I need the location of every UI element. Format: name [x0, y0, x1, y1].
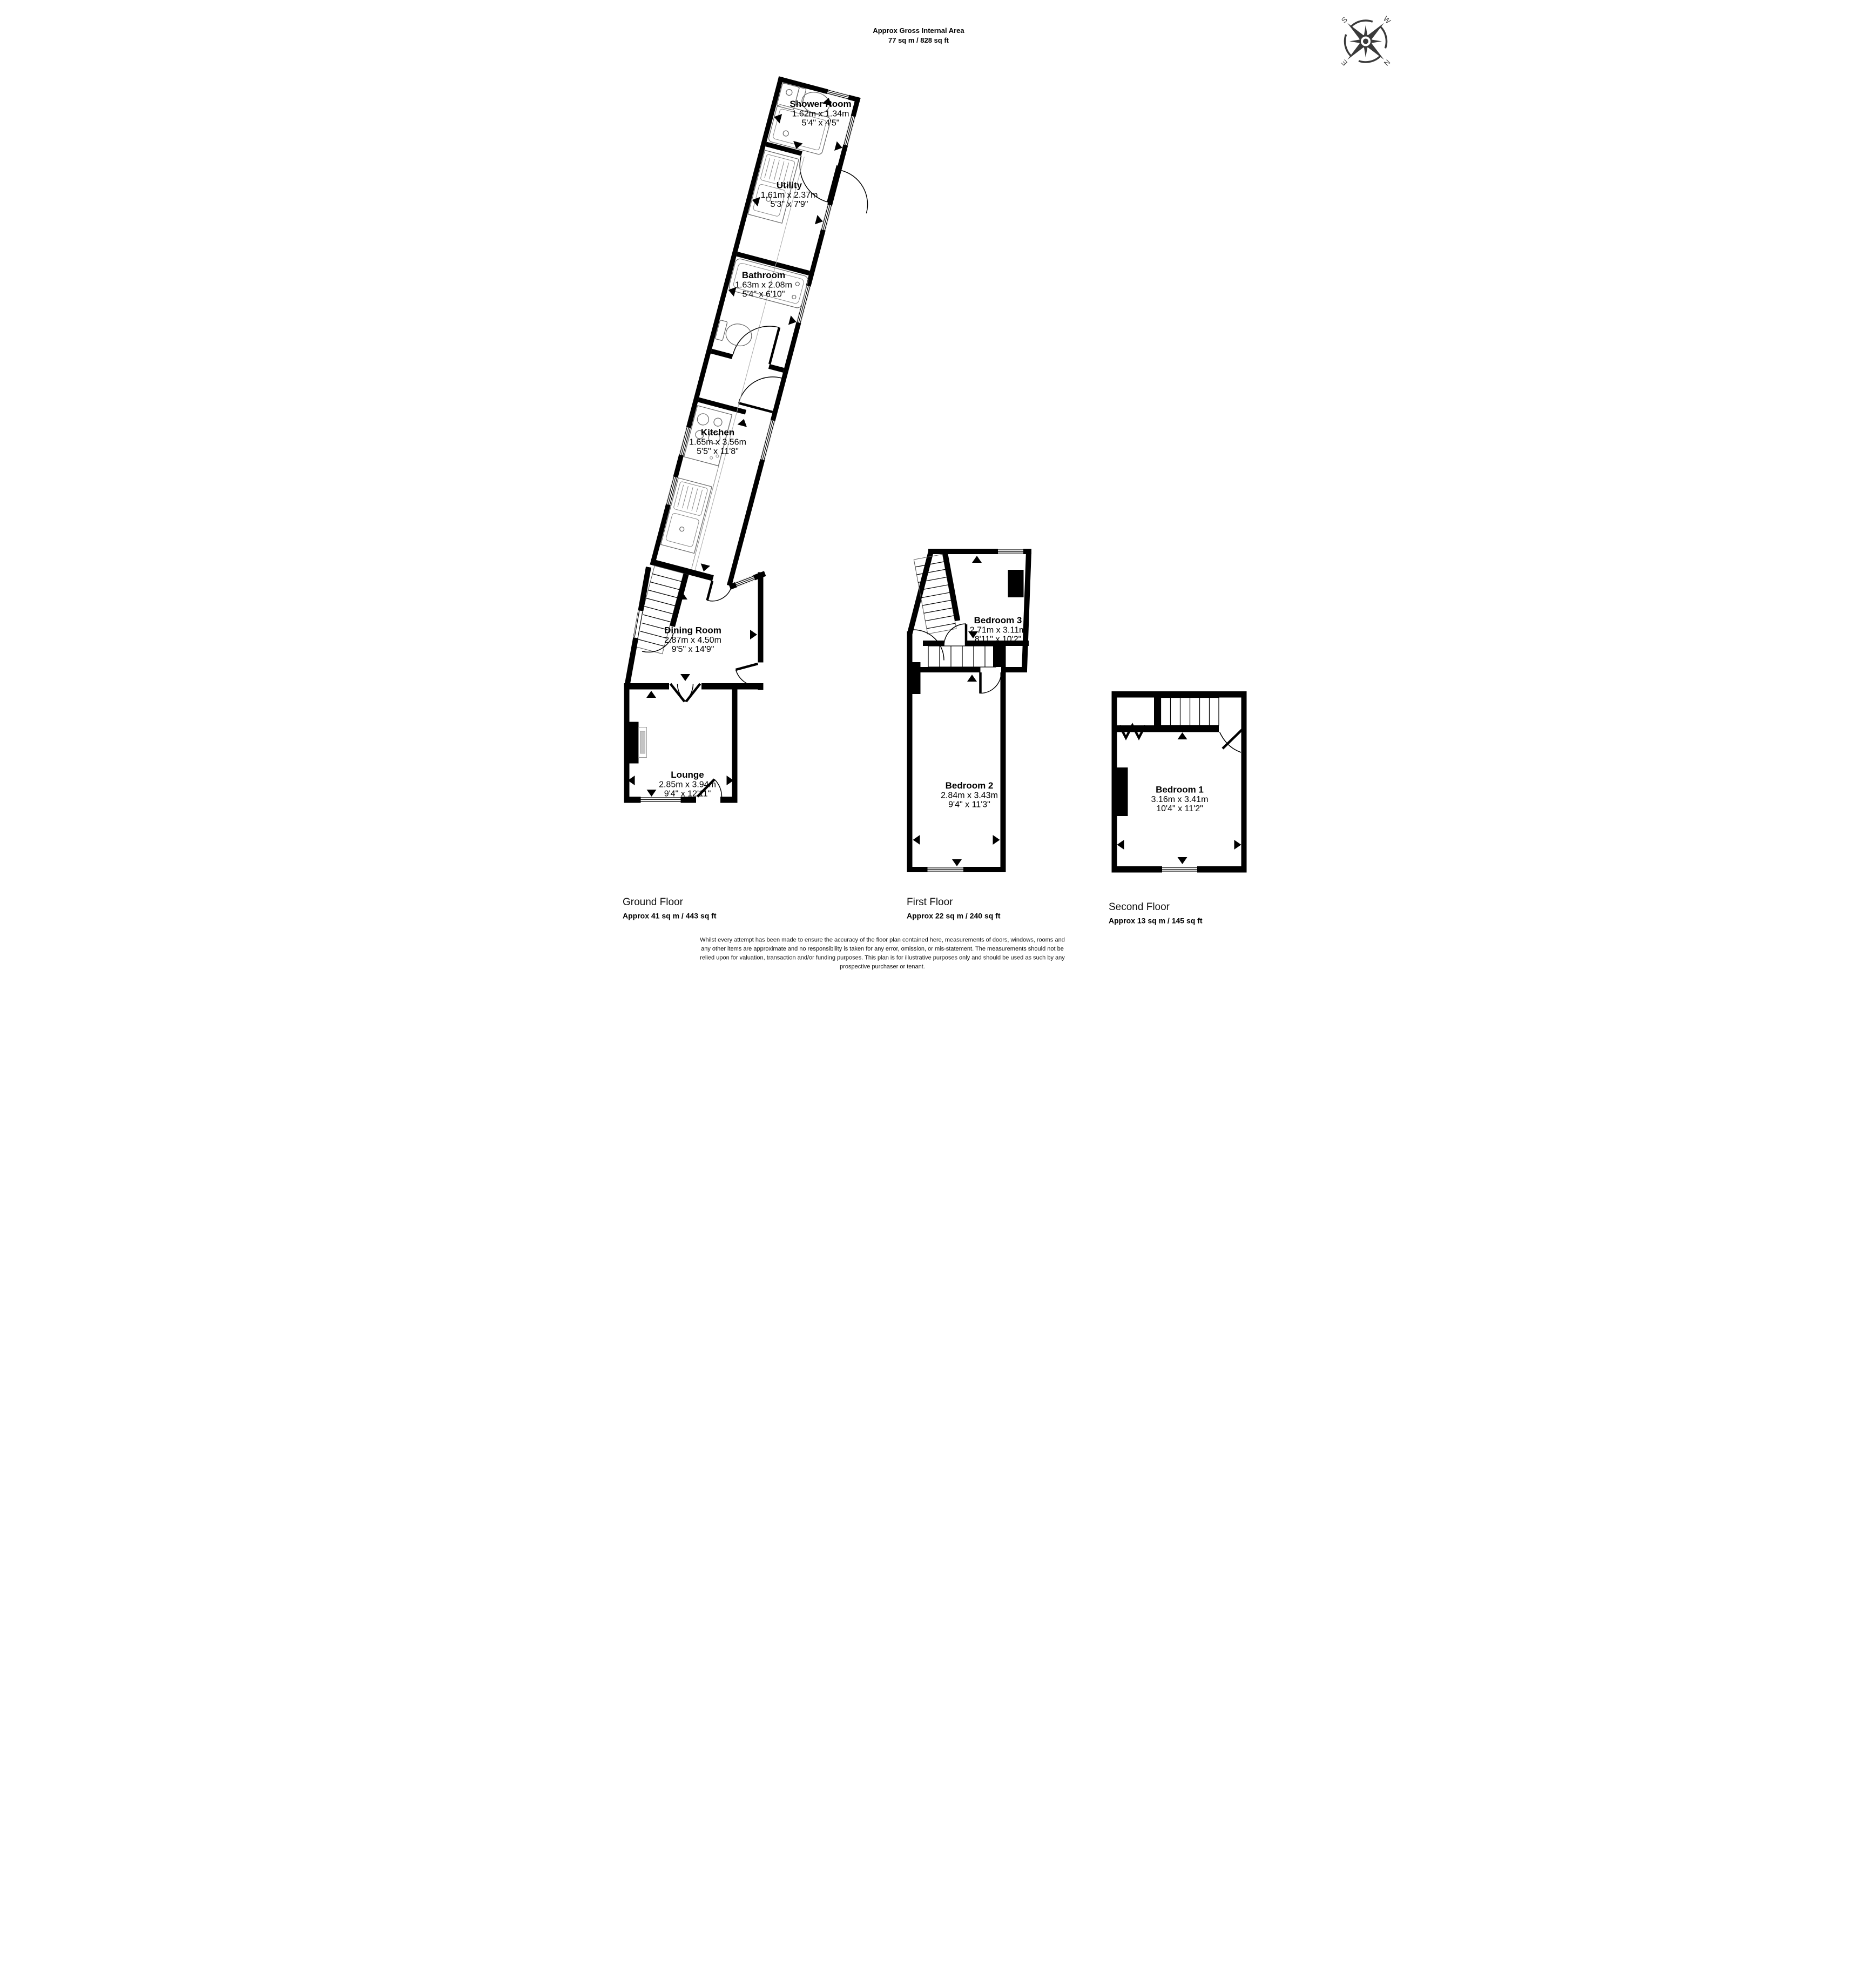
room-label-bedroom2: Bedroom 2 2.84m x 3.43m 9'4" x 11'3"	[941, 780, 998, 810]
wall	[768, 364, 784, 373]
chimney-breast	[1117, 767, 1128, 816]
room-dim-metric: 1.65m x 3.56m	[689, 438, 746, 447]
window	[666, 476, 678, 505]
room-dim-metric: 1.63m x 2.08m	[735, 281, 792, 290]
room-dim-imperial: 5'4" x 4'5"	[801, 119, 839, 128]
arrow-right-icon	[993, 835, 1000, 845]
wall	[1154, 725, 1219, 732]
arrow-down-icon	[646, 790, 656, 797]
room-name: Bedroom 3	[974, 615, 1022, 625]
wall	[711, 349, 733, 359]
wall	[732, 683, 737, 803]
header-area: 77 sq m / 828 sq ft	[888, 36, 949, 44]
room-name: Lounge	[671, 770, 704, 780]
door	[733, 318, 779, 364]
arrow-up-icon	[972, 556, 982, 563]
window	[827, 89, 849, 99]
wall	[1000, 667, 1006, 872]
disclaimer-line-1: Whilst every attempt has been made to en…	[700, 937, 1065, 944]
second-floor-title: Second Floor	[1109, 901, 1170, 913]
room-label-lounge: Lounge 2.85m x 3.94m 9'4" x 12'11"	[659, 770, 716, 799]
room-dim-imperial: 9'4" x 11'3"	[948, 800, 990, 810]
door-opening	[980, 667, 1001, 672]
room-name: Bedroom 2	[945, 780, 993, 791]
room-label-utility: Utility 1.61m x 2.37m 5'3" x 7'9"	[760, 180, 818, 210]
room-dim-metric: 2.87m x 4.50m	[664, 636, 721, 645]
header-title: Approx Gross Internal Area	[873, 26, 964, 35]
door	[1219, 729, 1243, 752]
arrow-right-icon	[750, 630, 757, 639]
room-dim-metric: 2.85m x 3.94m	[659, 780, 716, 790]
arrow-left-icon	[751, 195, 760, 206]
window	[760, 420, 775, 460]
first-floor-plan: Bedroom 3 2.71m x 3.11m 8'11" x 10'2" Be…	[907, 549, 1031, 872]
room-dim-imperial: 5'5" x 11'8"	[697, 447, 739, 456]
room-label-bedroom1: Bedroom 1 3.16m x 3.41m 10'4" x 11'2"	[1151, 785, 1208, 814]
room-dim-imperial: 8'11" x 10'2"	[974, 635, 1021, 644]
second-floor-plan: Bedroom 1 3.16m x 3.41m 10'4" x 11'2"	[1111, 691, 1246, 873]
floor-plan-svg: Approx Gross Internal Area 77 sq m / 828…	[469, 0, 1407, 984]
disclaimer: Whilst every attempt has been made to en…	[700, 937, 1065, 971]
window	[796, 285, 811, 323]
arrow-down-icon	[1177, 857, 1187, 864]
room-label-kitchen: Kitchen 1.65m x 3.56m 5'5" x 11'8"	[689, 427, 746, 456]
arrow-up-icon	[737, 417, 748, 427]
wall	[1111, 691, 1246, 698]
ground-floor-area: Approx 41 sq m / 443 sq ft	[623, 912, 717, 920]
arrow-up-icon	[646, 691, 656, 698]
room-label-bedroom3: Bedroom 3 2.71m x 3.11m 8'11" x 10'2"	[969, 615, 1026, 644]
door-opening	[944, 641, 967, 646]
room-label-shower: Shower Room 1.62m x 1.34m 5'4" x 4'5"	[789, 99, 851, 128]
disclaimer-line-2: any other items are approximate and no r…	[701, 946, 1064, 952]
wall	[1024, 551, 1029, 670]
kitchen-sink	[660, 478, 711, 554]
arrow-right-icon	[1234, 840, 1241, 850]
wall	[1111, 691, 1117, 873]
room-name: Kitchen	[700, 427, 734, 437]
arrow-up-icon	[1177, 732, 1187, 739]
room-dim-imperial: 10'4" x 11'2"	[1156, 804, 1203, 813]
ground-floor-title: Ground Floor	[623, 897, 684, 908]
room-dim-metric: 2.84m x 3.43m	[941, 791, 998, 800]
arrow-left-icon	[1117, 840, 1124, 850]
window	[821, 205, 832, 231]
disclaimer-line-3: relied upon for valuation, transaction a…	[700, 955, 1065, 961]
chimney-breast	[912, 662, 920, 694]
arrow-down-icon	[699, 563, 710, 572]
room-name: Bedroom 1	[1156, 785, 1204, 795]
chimney-breast	[1008, 570, 1023, 597]
arrow-up-icon	[967, 675, 977, 682]
room-dim-imperial: 5'3" x 7'9"	[770, 200, 808, 209]
stairs	[1160, 698, 1219, 726]
room-dim-imperial: 9'4" x 12'11"	[664, 790, 711, 799]
ground-floor-plan: Shower Room 1.62m x 1.34m 5'4" x 4'5" Ut…	[624, 76, 894, 803]
room-dim-metric: 3.16m x 3.41m	[1151, 795, 1208, 804]
door	[980, 672, 1001, 693]
room-name: Bathroom	[741, 270, 785, 280]
room-dim-metric: 1.62m x 1.34m	[792, 110, 849, 119]
room-label-bathroom: Bathroom 1.63m x 2.08m 5'4" x 6'10"	[735, 270, 792, 299]
arrow-down-icon	[680, 674, 690, 681]
window	[927, 867, 963, 872]
room-dim-metric: 1.61m x 2.37m	[760, 191, 818, 200]
compass-rose-icon: S W N E	[1329, 5, 1402, 78]
first-floor-title: First Floor	[907, 897, 953, 908]
second-floor-area: Approx 13 sq m / 145 sq ft	[1109, 917, 1203, 925]
floorplan-page: Approx Gross Internal Area 77 sq m / 828…	[469, 0, 1407, 984]
window	[843, 116, 855, 145]
first-floor-area: Approx 22 sq m / 240 sq ft	[907, 912, 1001, 920]
fireplace	[629, 722, 646, 764]
room-dim-imperial: 9'5" x 14'9"	[671, 645, 714, 654]
stairs	[928, 646, 1006, 667]
window	[1162, 866, 1197, 873]
wall	[1241, 691, 1246, 873]
room-name: Shower Room	[789, 99, 851, 109]
room-name: Utility	[776, 180, 802, 191]
arrow-left-icon	[913, 835, 920, 845]
toilet	[714, 319, 754, 348]
room-name: Dining Room	[664, 625, 721, 636]
room-dim-metric: 2.71m x 3.11m	[969, 626, 1026, 635]
window	[998, 549, 1023, 554]
header: Approx Gross Internal Area 77 sq m / 828…	[873, 26, 964, 44]
room-dim-imperial: 5'4" x 6'10"	[742, 290, 785, 299]
arrow-down-icon	[952, 859, 962, 866]
wall	[907, 631, 912, 872]
floor-captions: Ground Floor Approx 41 sq m / 443 sq ft …	[623, 897, 1203, 925]
wall	[909, 551, 931, 634]
wall	[624, 683, 629, 803]
room-label-dining: Dining Room 2.87m x 4.50m 9'5" x 14'9"	[664, 625, 721, 655]
wall	[1003, 667, 1027, 672]
disclaimer-line-4: prospective purchaser or tenant.	[840, 964, 925, 970]
wall	[727, 97, 861, 586]
